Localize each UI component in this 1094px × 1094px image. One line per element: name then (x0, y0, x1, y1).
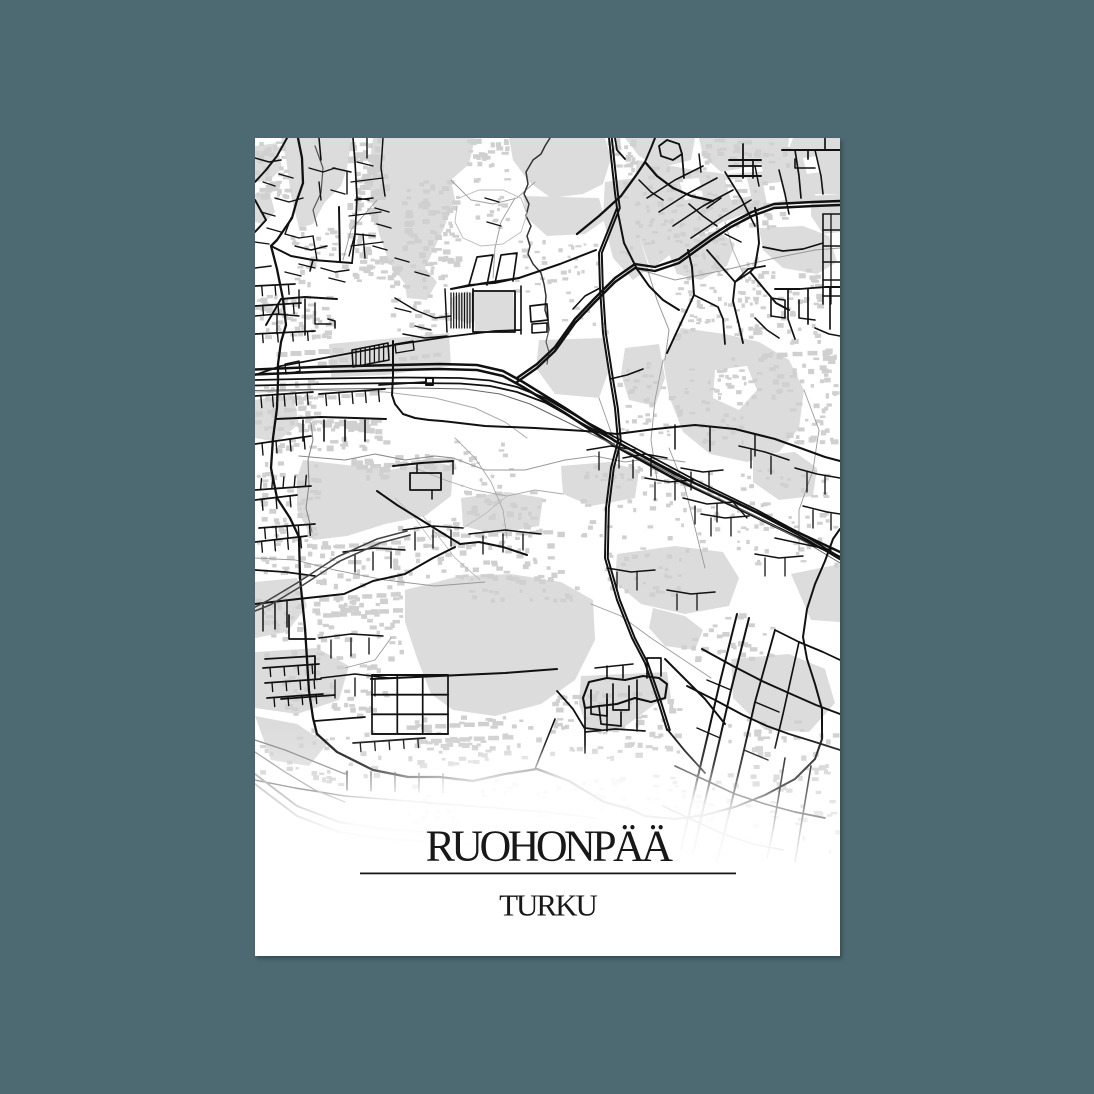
svg-text:TURKU: TURKU (499, 887, 597, 922)
svg-text:RUOHONPÄÄ: RUOHONPÄÄ (426, 821, 674, 870)
